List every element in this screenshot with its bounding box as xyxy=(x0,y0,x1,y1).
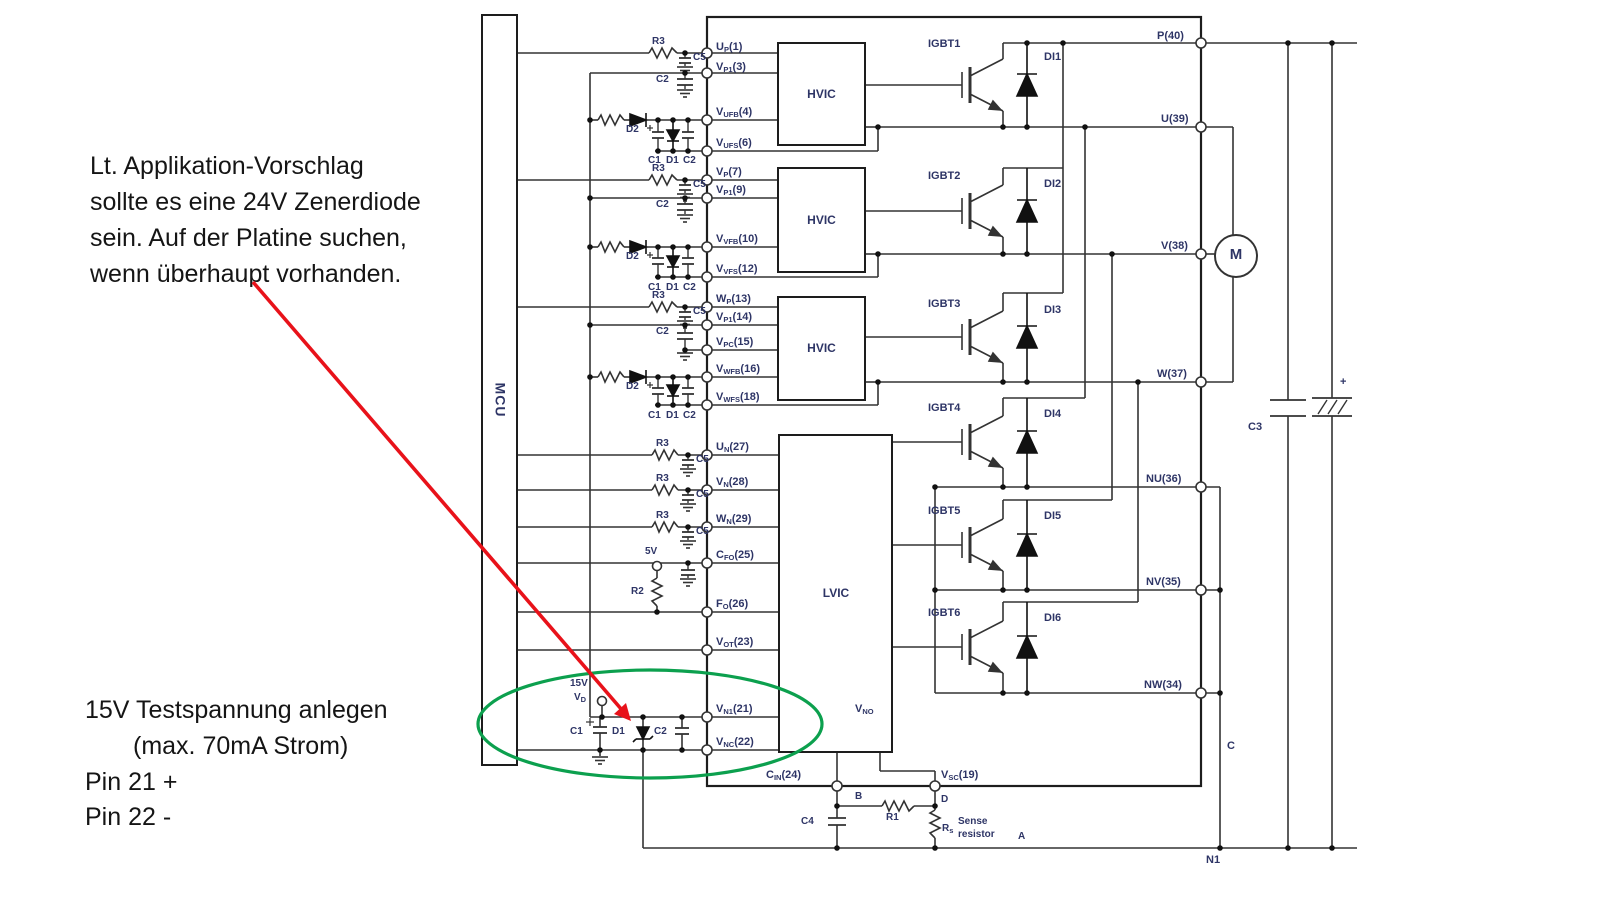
circuit-svg xyxy=(0,0,1600,900)
pin-vufb-4: VUFB(4) xyxy=(716,106,752,121)
r1-label: R1 xyxy=(886,812,899,824)
r3-label: R3 xyxy=(656,438,669,450)
vd-label: VD xyxy=(574,692,586,706)
pin-vwfs-18: VWFS(18) xyxy=(716,391,760,406)
di2-label: DI2 xyxy=(1044,178,1061,190)
pin-vvfb-10: VVFB(10) xyxy=(716,233,758,248)
n1-label: N1 xyxy=(1206,854,1220,866)
pin-vp-7: VP(7) xyxy=(716,166,742,181)
pin-un-27: UN(27) xyxy=(716,441,749,456)
vno-label: VNO xyxy=(855,703,874,718)
schematic-page: MCU HVIC HVIC HVIC LVIC VNO UP(1) VP1(3)… xyxy=(0,0,1600,900)
mcu-label: MCU xyxy=(483,368,517,432)
igbt-symbols xyxy=(962,43,1003,693)
c5-label: C5 xyxy=(696,454,709,466)
pin-vn-28: VN(28) xyxy=(716,476,748,491)
c2-label: C2 xyxy=(683,410,696,422)
pin-vufs-6: VUFS(6) xyxy=(716,137,752,152)
hvic1-label: HVIC xyxy=(795,87,848,101)
d1-label: D1 xyxy=(612,726,625,738)
pin-u-39: U(39) xyxy=(1161,113,1189,125)
node-d-label: D xyxy=(941,794,948,806)
igbt4-label: IGBT4 xyxy=(928,402,960,414)
c2-label: C2 xyxy=(656,74,669,86)
d1-label: D1 xyxy=(666,410,679,422)
pin-cin-24: CIN(24) xyxy=(766,769,801,784)
pin-vnc-22: VNC(22) xyxy=(716,736,754,751)
rs-label: Rs xyxy=(942,823,953,837)
c5-label: C5 xyxy=(693,179,706,191)
pin-cfo-25: CFO(25) xyxy=(716,549,754,564)
hvic2-label: HVIC xyxy=(795,213,848,227)
di4-label: DI4 xyxy=(1044,408,1061,420)
annotation-zener-line3: sein. Auf der Platine suchen, xyxy=(90,220,407,256)
c1-label: C1 xyxy=(570,726,583,738)
annotation-zener-line1: Lt. Applikation-Vorschlag xyxy=(90,148,364,184)
5v-terminal xyxy=(653,562,662,571)
r3-label: R3 xyxy=(656,510,669,522)
c5-label: C5 xyxy=(696,489,709,501)
pin-nu-36: NU(36) xyxy=(1146,473,1181,485)
pin-vp1-14: VP1(14) xyxy=(716,311,752,326)
pin-vvfs-12: VVFS(12) xyxy=(716,263,758,278)
pin-up-1: UP(1) xyxy=(716,41,742,56)
di5-label: DI5 xyxy=(1044,510,1061,522)
d2-label: D2 xyxy=(626,124,639,136)
vd-terminal xyxy=(598,697,607,706)
c3-label: C3 xyxy=(1248,421,1262,433)
annotation-test-line3: Pin 21 + xyxy=(85,764,177,800)
sense-resistor-label: Sense xyxy=(958,816,987,828)
freewheel-diodes xyxy=(1017,43,1037,693)
node-b-label: B xyxy=(855,791,862,803)
pin-vp1-3: VP1(3) xyxy=(716,61,746,76)
igbt1-label: IGBT1 xyxy=(928,38,960,50)
annotation-test-line4: Pin 22 - xyxy=(85,799,171,835)
pin-vp1-9: VP1(9) xyxy=(716,184,746,199)
motor-label: M xyxy=(1224,246,1248,263)
igbt3-label: IGBT3 xyxy=(928,298,960,310)
pin-wp-13: WP(13) xyxy=(716,293,751,308)
hvic3-label: HVIC xyxy=(795,341,848,355)
pin-vn1-21: VN1(21) xyxy=(716,703,753,718)
diodes xyxy=(630,113,679,742)
pin-p-40: P(40) xyxy=(1157,30,1184,42)
c5-label: C5 xyxy=(693,306,706,318)
c4-label: C4 xyxy=(801,816,814,828)
c5-label: C5 xyxy=(693,52,706,64)
lvic-label: LVIC xyxy=(800,586,872,600)
pin-vpc-15: VPC(15) xyxy=(716,336,753,351)
r2-label: R2 xyxy=(631,586,644,598)
c5-label: C5 xyxy=(696,526,709,538)
pin-vot-23: VOT(23) xyxy=(716,636,753,651)
junction-dots xyxy=(587,40,1335,851)
plus-label: + xyxy=(1340,376,1346,388)
annotation-zener-line2: sollte es eine 24V Zenerdiode xyxy=(90,184,421,220)
di1-label: DI1 xyxy=(1044,51,1061,63)
r3-label: R3 xyxy=(652,36,665,48)
pin-fo-26: FO(26) xyxy=(716,598,748,613)
c2-label: C2 xyxy=(656,326,669,338)
pin-vsc-19: VSC(19) xyxy=(941,769,978,784)
pin-nw-34: NW(34) xyxy=(1144,679,1182,691)
pin-v-38: V(38) xyxy=(1161,240,1188,252)
igbt6-label: IGBT6 xyxy=(928,607,960,619)
pin-nv-35: NV(35) xyxy=(1146,576,1181,588)
node-c-label: C xyxy=(1227,740,1235,752)
igbt5-label: IGBT5 xyxy=(928,505,960,517)
annotation-test-line2: (max. 70mA Strom) xyxy=(133,728,348,764)
c1-label: C1 xyxy=(648,282,661,294)
annotation-zener-line4: wenn überhaupt vorhanden. xyxy=(90,256,401,292)
d1-label: D1 xyxy=(666,282,679,294)
r3-label: R3 xyxy=(656,473,669,485)
sense-resistor-label: resistor xyxy=(958,829,995,841)
pin-wn-29: WN(29) xyxy=(716,513,751,528)
igbt2-label: IGBT2 xyxy=(928,170,960,182)
node-a-label: A xyxy=(1018,831,1025,843)
c2-label: C2 xyxy=(683,155,696,167)
c2-label: C2 xyxy=(656,199,669,211)
di6-label: DI6 xyxy=(1044,612,1061,624)
annotation-test-line1: 15V Testspannung anlegen xyxy=(85,692,388,728)
5v-label: 5V xyxy=(645,546,657,558)
d2-label: D2 xyxy=(626,381,639,393)
c1-label: C1 xyxy=(648,410,661,422)
15v-label: 15V xyxy=(570,678,588,690)
pin-w-37: W(37) xyxy=(1157,368,1187,380)
c2-label: C2 xyxy=(654,726,667,738)
di3-label: DI3 xyxy=(1044,304,1061,316)
d1-label: D1 xyxy=(666,155,679,167)
ground-symbols xyxy=(592,67,696,764)
c1-label: C1 xyxy=(648,155,661,167)
pin-vwfb-16: VWFB(16) xyxy=(716,363,760,378)
c2-label: C2 xyxy=(683,282,696,294)
d2-label: D2 xyxy=(626,251,639,263)
